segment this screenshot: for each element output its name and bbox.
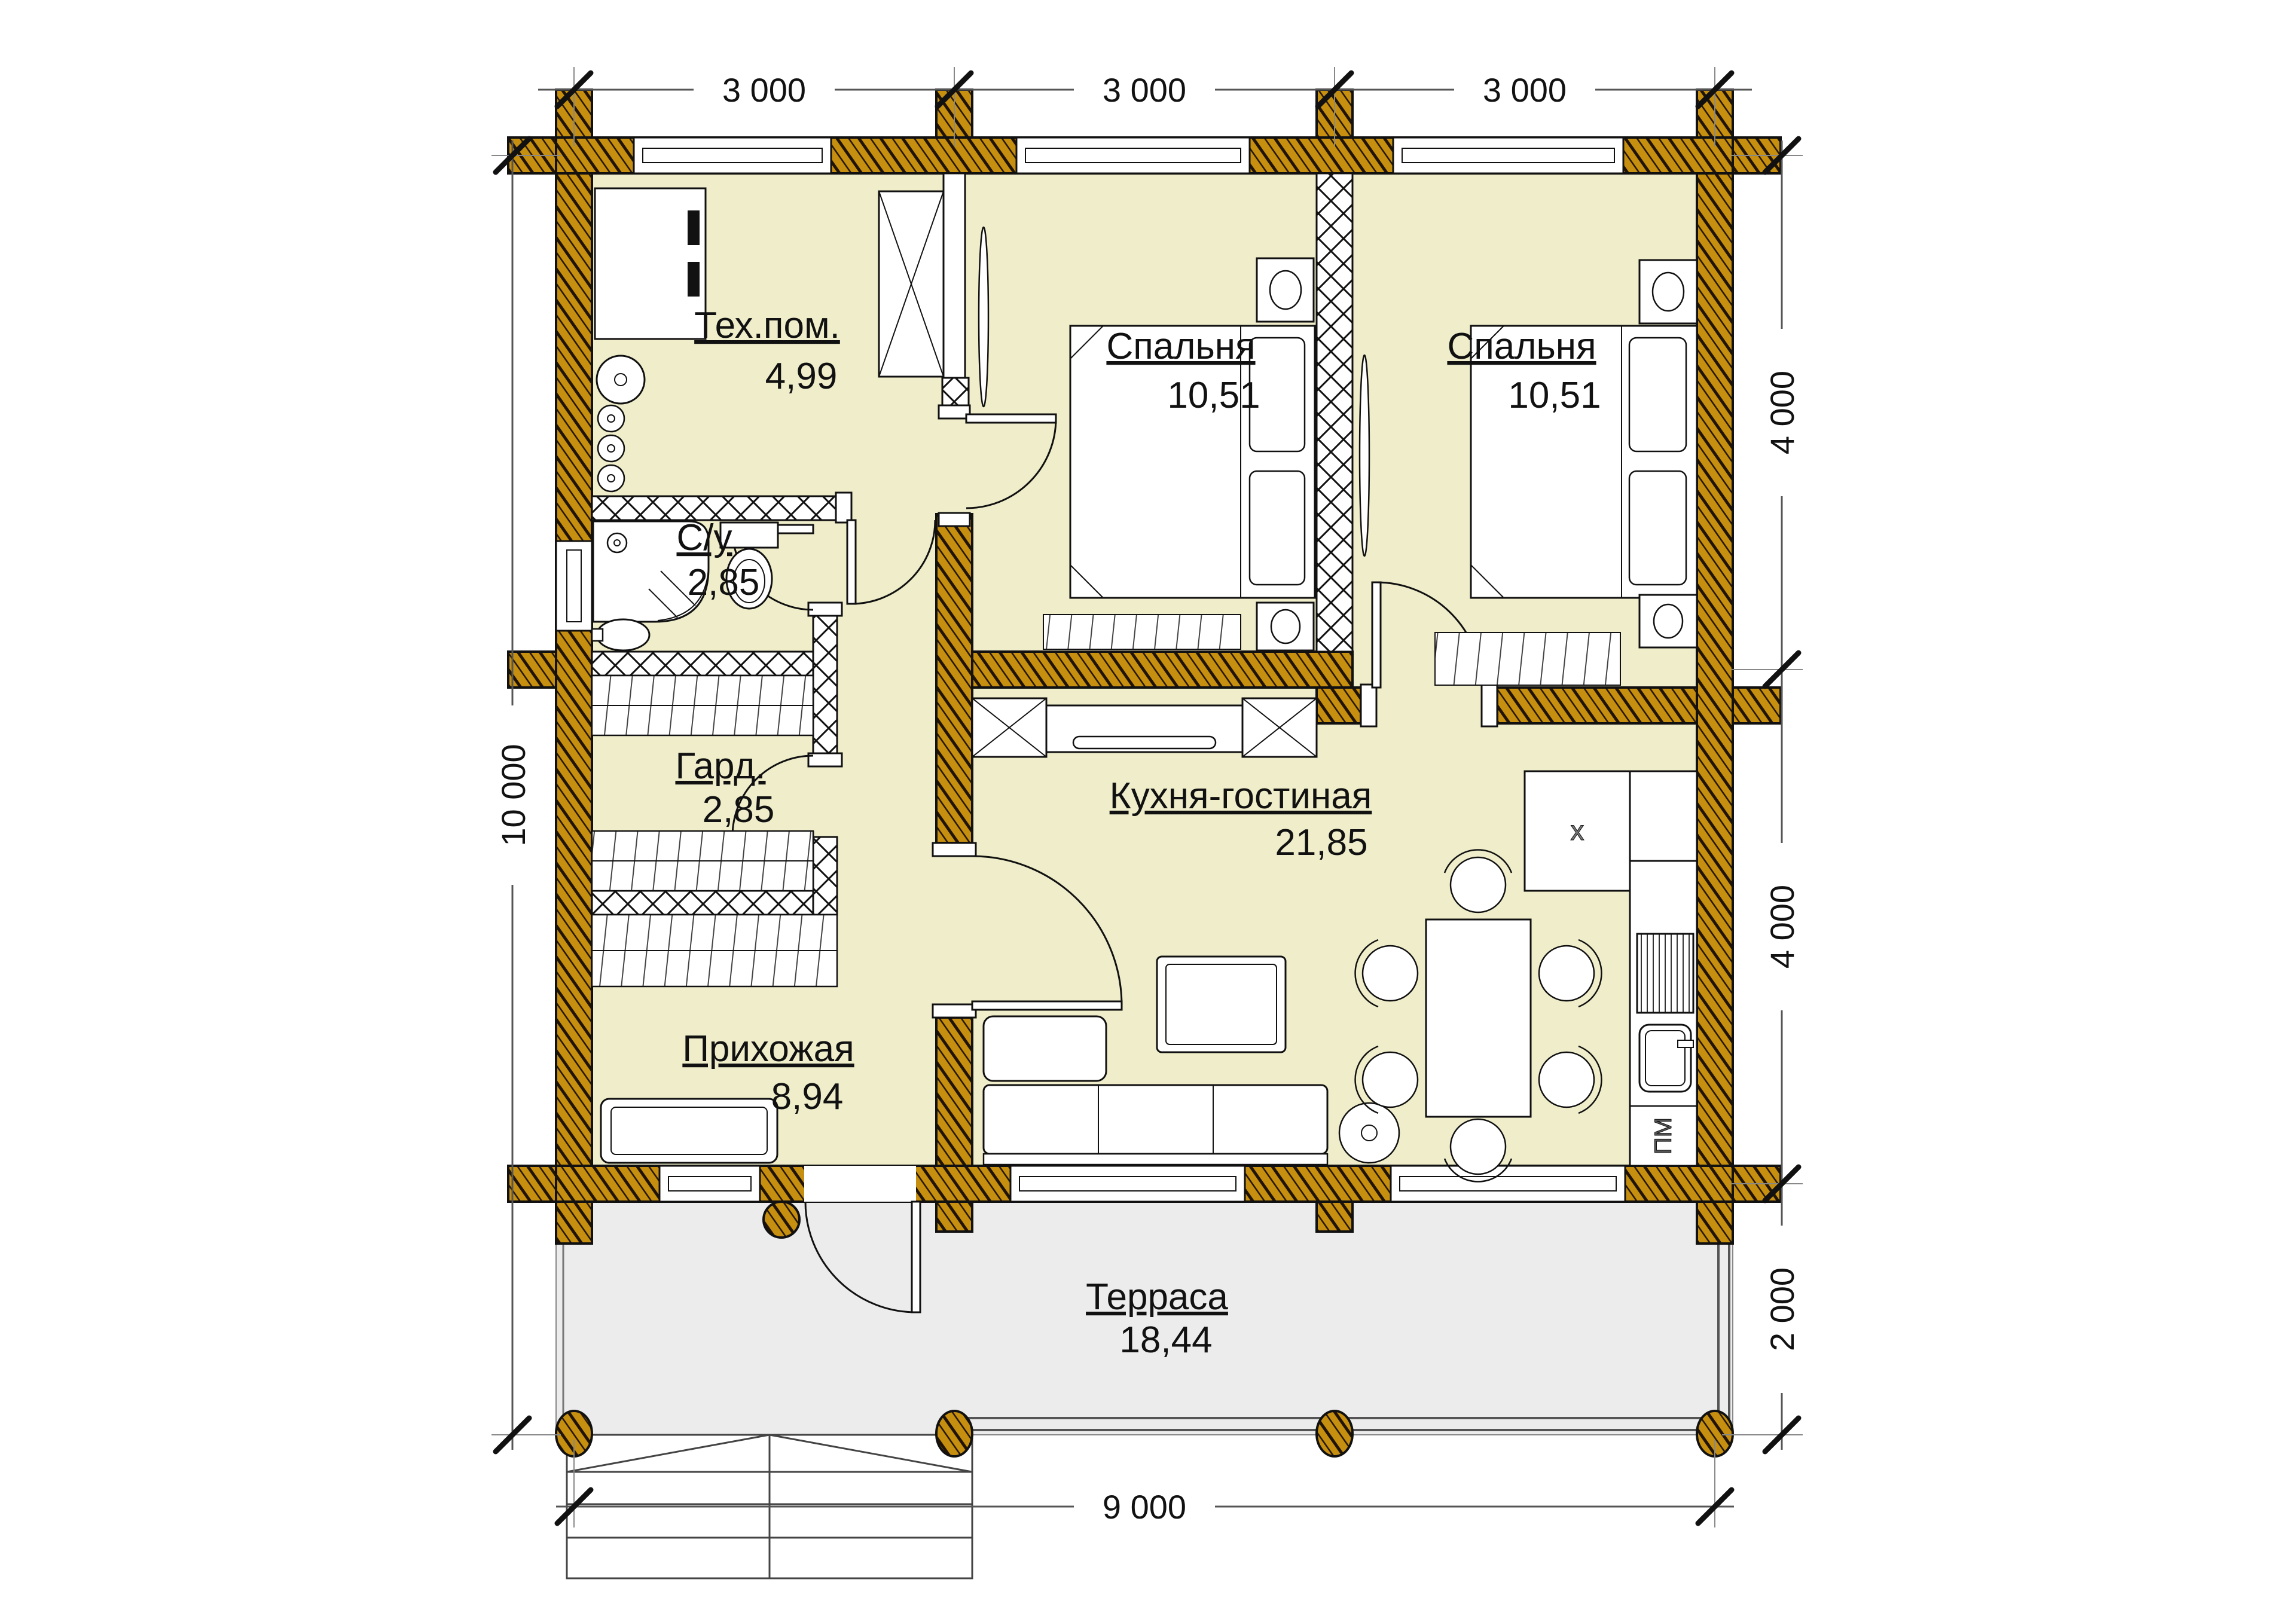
dim-right-2: 4 000 [1763, 885, 1801, 969]
partition-bedroom1-light [944, 173, 965, 378]
lamp [1653, 273, 1684, 311]
terrace-deck [556, 1202, 1733, 1435]
wall-left [556, 138, 592, 1202]
hall-bench [601, 1099, 777, 1163]
room-area-hallway: 8,94 [771, 1076, 844, 1117]
nightstand [1257, 603, 1314, 650]
room-label-bedroom1: Спальня [1106, 326, 1255, 367]
room-label-tech: Тех.пом. [694, 305, 840, 346]
wall-mid-bedroom2 [1317, 688, 1361, 723]
partition-corridor [813, 837, 837, 915]
entry-door-opening [804, 1166, 916, 1202]
room-area-bedroom1: 10,51 [1167, 375, 1260, 416]
upper-cabinet [1630, 771, 1697, 861]
coffee-table [1157, 957, 1286, 1052]
rug [1043, 615, 1241, 649]
chimney-shaft [879, 191, 944, 377]
floor-plan-page: x ПМ Тех.пом. 4,99 Спальня 10,51 Спальня… [0, 0, 2296, 1607]
room-label-bathroom: С/у [677, 517, 732, 558]
wall-right [1697, 138, 1733, 1202]
partition-bath-wardrobe [592, 652, 813, 676]
room-label-bedroom2: Спальня [1447, 326, 1596, 367]
room-area-kitchen: 21,85 [1275, 822, 1367, 863]
faucet [1678, 1040, 1693, 1047]
dim-right-3: 2 000 [1763, 1267, 1801, 1351]
room-label-wardrobe: Гард. [675, 746, 765, 787]
wall-hall-kitchen [936, 514, 972, 843]
log-stub [556, 1202, 592, 1244]
partition-tech [592, 496, 837, 520]
window-top-bedroom1 [1016, 138, 1250, 173]
mirror [979, 227, 988, 407]
dining-table [1426, 919, 1531, 1117]
kitchen-sink [1639, 1025, 1691, 1092]
tv [1073, 737, 1216, 748]
log-stub [508, 1166, 556, 1202]
wall-hall-kitchen [936, 1018, 972, 1166]
room-label-terrace: Терраса [1086, 1276, 1228, 1318]
dim-right-1: 4 000 [1763, 371, 1801, 454]
log-stub [1733, 688, 1781, 723]
room-label-kitchen: Кухня-гостиная [1110, 775, 1372, 817]
log-stub [508, 652, 556, 688]
nightstand [1257, 258, 1314, 322]
stove [1637, 934, 1693, 1013]
lamp [1271, 610, 1300, 643]
mirror [1360, 355, 1369, 556]
room-area-bathroom: 2,85 [688, 562, 760, 603]
room-area-terrace: 18,44 [1119, 1319, 1212, 1361]
wall-mid-bedroom2 [1497, 688, 1697, 723]
room-area-bedroom2: 10,51 [1508, 375, 1601, 416]
floor-plan-drawing: x ПМ Тех.пом. 4,99 Спальня 10,51 Спальня… [0, 0, 2296, 1607]
dim-top-2: 3 000 [1103, 71, 1186, 109]
dim-top-3: 3 000 [1483, 71, 1567, 109]
tv-unit [972, 698, 1317, 757]
room-label-hallway: Прихожая [682, 1028, 854, 1070]
floor-lamp [1339, 1103, 1399, 1163]
dishwasher-mark: ПМ [1650, 1117, 1677, 1154]
window-bottom-hallway [660, 1166, 760, 1202]
window-bottom-kitchen-2 [1391, 1166, 1625, 1202]
ottoman [984, 1016, 1106, 1081]
log-stub [1697, 1202, 1733, 1244]
partition-wardrobe-hall [592, 891, 813, 915]
nightstand [1639, 595, 1697, 647]
room-area-wardrobe: 2,85 [703, 789, 775, 830]
nightstand [1639, 260, 1697, 323]
dim-left: 10 000 [494, 744, 532, 846]
entry-log-column [764, 1202, 799, 1238]
lamp [1654, 604, 1683, 638]
pillow [1629, 471, 1686, 585]
log-stub [936, 1202, 972, 1232]
wardrobe-racks [592, 676, 837, 986]
window-left-bathroom [556, 541, 592, 631]
lamp [1270, 271, 1301, 309]
partition-corridor [813, 616, 837, 753]
log-stub [1317, 1202, 1352, 1232]
partition-bedrooms [1317, 173, 1352, 652]
fridge-mark: x [1571, 815, 1584, 846]
window-top-tech [634, 138, 831, 173]
dim-top-1: 3 000 [722, 71, 806, 109]
window-top-bedroom2 [1393, 138, 1623, 173]
pillow [1629, 338, 1686, 451]
dim-bottom: 9 000 [1103, 1488, 1186, 1526]
wall-mid-bedroom1 [936, 652, 1352, 688]
rug [1435, 633, 1620, 685]
room-area-tech: 4,99 [765, 356, 838, 397]
window-bottom-kitchen-1 [1010, 1166, 1245, 1202]
pillow [1250, 471, 1305, 585]
